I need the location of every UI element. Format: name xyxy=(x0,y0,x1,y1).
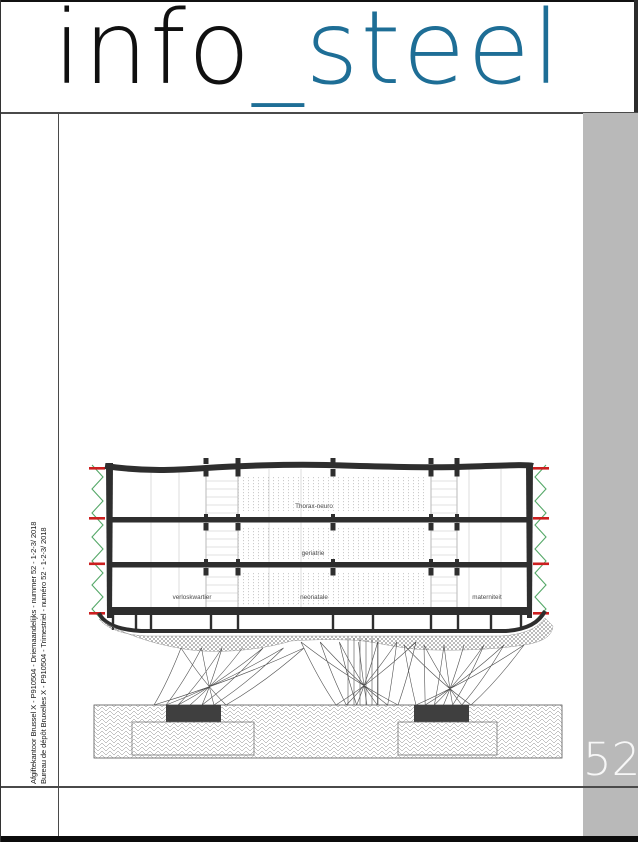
tree-column-middle-verticals xyxy=(348,638,378,705)
right-edge-strip xyxy=(634,0,638,113)
imprint-line-french: Bureau de dépôt Bruxelles X - P910504 - … xyxy=(39,496,49,784)
left-margin-rule xyxy=(58,113,59,836)
base-slab xyxy=(107,607,532,615)
header-divider-rule xyxy=(1,112,638,114)
floor-slab-1 xyxy=(110,517,529,523)
left-facade-column xyxy=(106,463,113,618)
building-section-drawing: Thorax-neuro geriatrie verloskwartier ne… xyxy=(86,455,571,765)
left-spring-symbol xyxy=(92,465,103,621)
imprint-line-dutch: Afgiftekantoor Brussel X - P910504 - Dri… xyxy=(29,496,39,784)
magazine-logo: info_steel xyxy=(53,0,562,112)
floor-slab-2 xyxy=(110,562,529,568)
issue-number: 52 xyxy=(583,737,637,782)
soffit-hatch xyxy=(99,618,553,651)
label-neonatale: neonatale xyxy=(300,594,328,601)
right-side-panel: 52 xyxy=(583,113,638,836)
magazine-cover: info_steel 52 Afgiftekantoor Brussel X -… xyxy=(0,0,638,842)
bottom-border-bar xyxy=(1,836,638,842)
postal-imprint-text: Afgiftekantoor Brussel X - P910504 - Dri… xyxy=(29,496,49,784)
right-facade-column xyxy=(526,463,533,618)
left-footing-pad xyxy=(166,705,221,722)
logo-text-info: info xyxy=(53,0,252,108)
right-footing-pad xyxy=(414,705,469,722)
tree-column-left xyxy=(154,648,304,705)
label-geriatrie: geriatrie xyxy=(302,550,325,557)
label-materniteit: materniteit xyxy=(472,594,502,601)
label-verloskwartier: verloskwartier xyxy=(173,594,212,601)
tree-column-middle xyxy=(301,642,416,705)
logo-text-steel: _steel xyxy=(252,0,562,108)
footer-divider-rule xyxy=(1,786,638,788)
label-thorax-neuro: Thorax-neuro xyxy=(295,503,333,510)
ceiling-grid-areas xyxy=(236,477,426,605)
right-spring-symbol xyxy=(535,465,546,621)
foundation-ground xyxy=(94,705,562,758)
roof-slab xyxy=(105,465,533,470)
base-ribs xyxy=(112,615,522,630)
tree-column-right xyxy=(404,645,524,705)
ground-slab xyxy=(94,705,562,758)
